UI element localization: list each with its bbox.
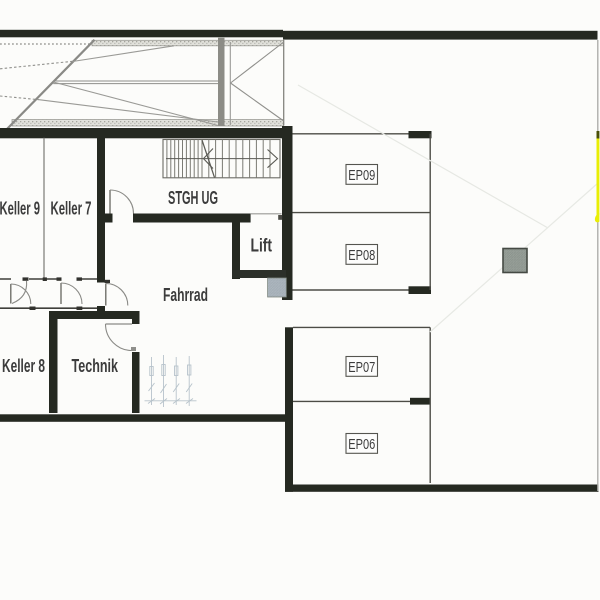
svg-text:Keller 9: Keller 9 bbox=[0, 197, 40, 218]
svg-text:Keller 8: Keller 8 bbox=[2, 355, 45, 376]
svg-text:Technik: Technik bbox=[72, 355, 119, 376]
svg-text:Keller 7: Keller 7 bbox=[51, 197, 92, 218]
svg-text:Lift: Lift bbox=[251, 236, 273, 256]
svg-text:Fahrrad: Fahrrad bbox=[163, 284, 208, 305]
svg-text:EP09: EP09 bbox=[348, 168, 375, 184]
svg-text:STGH UG: STGH UG bbox=[168, 187, 218, 208]
svg-text:EP07: EP07 bbox=[348, 360, 375, 376]
svg-text:EP08: EP08 bbox=[348, 248, 375, 264]
svg-text:EP06: EP06 bbox=[348, 437, 375, 453]
